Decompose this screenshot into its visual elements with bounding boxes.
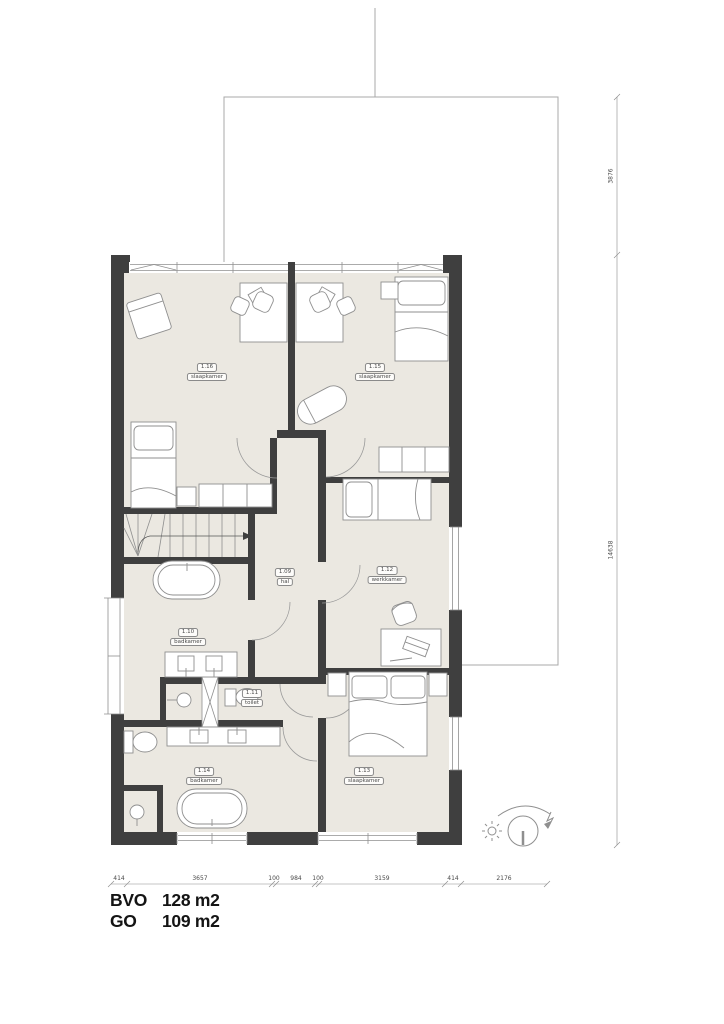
room-label-badkamer-110: 1.10 badkamer — [170, 628, 206, 646]
floor-plan-drawing — [0, 0, 724, 1024]
room-label-hal: 1.09 hal — [275, 568, 295, 586]
dimension-line-right — [614, 94, 620, 848]
bed-single — [343, 479, 431, 520]
vanity-sinks — [167, 727, 280, 746]
wardrobe — [199, 484, 272, 507]
duct-shaft — [202, 677, 218, 727]
nightstand — [328, 673, 346, 696]
dim-right-0: 3876 — [608, 168, 615, 183]
dim-bottom-2: 100 — [268, 875, 279, 882]
dim-right-1: 14638 — [608, 540, 615, 559]
dim-bottom-7: 2176 — [496, 875, 511, 882]
dim-bottom-1: 3657 — [192, 875, 207, 882]
desk — [381, 629, 441, 666]
dimension-line-bottom — [108, 881, 550, 887]
bvo-row: BVO 128 m2 — [110, 890, 220, 911]
cabinet — [177, 487, 196, 506]
dim-bottom-6: 414 — [447, 875, 458, 882]
bed-single — [395, 277, 448, 361]
sun-arc-arrow-icon — [498, 806, 553, 829]
room-label-toilet: 1.11 toilet — [241, 689, 263, 707]
dim-bottom-3: 984 — [290, 875, 301, 882]
room-label-slaapkamer-113: 1.13 slaapkamer — [344, 767, 384, 785]
room-label-werkkamer: 1.12 werkkamer — [368, 566, 407, 584]
bathtub — [177, 789, 247, 828]
cabinet — [381, 282, 398, 299]
dim-bottom-5: 3159 — [374, 875, 389, 882]
sun-icon — [482, 821, 502, 841]
bathtub — [153, 561, 220, 599]
nightstand — [429, 673, 447, 696]
sun-path-symbol — [482, 806, 553, 846]
area-summary: BVO 128 m2 GO 109 m2 — [110, 890, 220, 932]
vanity-sinks — [165, 652, 237, 677]
go-label: GO — [110, 911, 162, 932]
room-label-slaapkamer-116: 1.16 slaapkamer — [187, 363, 227, 381]
bed-double — [349, 672, 427, 756]
bvo-label: BVO — [110, 890, 162, 911]
toilet — [124, 731, 157, 753]
wardrobe — [379, 447, 449, 472]
dim-bottom-4: 100 — [312, 875, 323, 882]
room-label-slaapkamer-115: 1.15 slaapkamer — [355, 363, 395, 381]
bvo-value: 128 m2 — [162, 890, 220, 911]
go-row: GO 109 m2 — [110, 911, 220, 932]
dim-bottom-0: 414 — [113, 875, 124, 882]
north-circle-icon — [508, 816, 538, 846]
go-value: 109 m2 — [162, 911, 220, 932]
bed-single — [131, 422, 176, 508]
room-label-badkamer-114: 1.14 badkamer — [186, 767, 222, 785]
floor-plan-page: 1.16 slaapkamer 1.15 slaapkamer 1.09 hal… — [0, 0, 724, 1024]
